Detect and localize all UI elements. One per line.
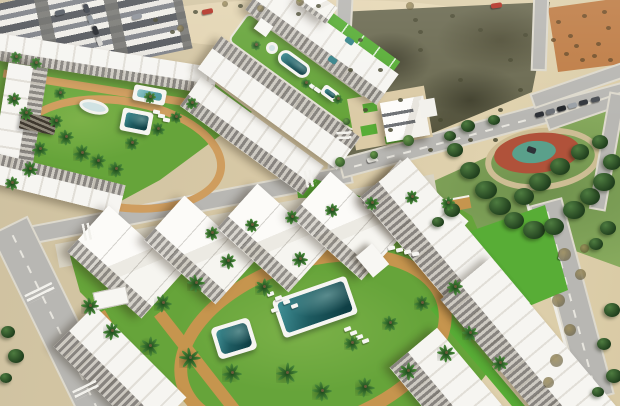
- shrub: [316, 4, 321, 8]
- pine-tree: [571, 144, 589, 159]
- pine-tree: [606, 369, 620, 383]
- shrub: [428, 148, 433, 152]
- dry-tree: [257, 5, 264, 12]
- shrub: [478, 28, 483, 32]
- palm-tree: [144, 90, 156, 102]
- crosswalk: [72, 380, 100, 400]
- shrub: [450, 14, 455, 18]
- palm-tree: [58, 128, 74, 144]
- parked-car: [55, 8, 66, 15]
- shrub: [498, 108, 503, 112]
- palm-tree: [22, 160, 38, 176]
- parked-car: [590, 95, 600, 102]
- dry-tree: [575, 269, 586, 280]
- palm-tree: [245, 217, 259, 231]
- sun-lounger: [343, 326, 351, 332]
- crosswalk: [336, 131, 352, 142]
- sun-lounger: [282, 299, 290, 305]
- sun-lounger: [403, 249, 411, 254]
- palm-tree: [49, 113, 63, 127]
- palm-tree: [19, 105, 33, 119]
- dirt-shrub: [574, 44, 579, 48]
- pine-tree: [461, 120, 475, 132]
- aerial-development-render: [0, 0, 620, 406]
- dry-tree: [177, 25, 184, 32]
- palm-tree: [462, 324, 478, 340]
- palm-tree: [125, 135, 139, 149]
- palm-tree: [10, 50, 22, 62]
- palm-tree: [30, 56, 42, 68]
- shrub: [378, 68, 383, 72]
- sun-lounger: [387, 245, 395, 250]
- pine-tree: [432, 217, 444, 227]
- palm-tree: [292, 250, 308, 266]
- dirt-shrub: [602, 10, 607, 14]
- palm-tree: [222, 362, 242, 382]
- parked-car: [86, 14, 94, 24]
- parked-car: [556, 104, 566, 111]
- crosswalk: [24, 282, 55, 304]
- palm-tree: [382, 314, 398, 330]
- pine-tree: [563, 201, 585, 220]
- palm-tree: [103, 321, 121, 339]
- pine-tree: [475, 181, 497, 200]
- dirt-shrub: [564, 52, 569, 56]
- shrub: [468, 138, 473, 142]
- parked-car: [534, 110, 544, 117]
- pine-tree: [600, 221, 616, 235]
- pine-tree: [8, 349, 24, 363]
- dirt-shrub: [592, 54, 597, 58]
- tree: [335, 157, 345, 167]
- shrub: [438, 118, 443, 122]
- sun-lounger: [411, 251, 419, 256]
- pine-tree: [589, 238, 603, 250]
- pine-tree: [597, 338, 611, 350]
- palm-tree: [325, 202, 339, 216]
- palm-tree: [255, 277, 273, 295]
- pine-tree: [604, 303, 620, 317]
- palm-tree: [405, 189, 419, 203]
- shrub: [238, 4, 243, 8]
- parked-car: [132, 12, 143, 19]
- shrub: [418, 48, 423, 52]
- shrub: [518, 88, 523, 92]
- palm-tree: [187, 273, 205, 291]
- dirt-shrub: [606, 26, 611, 30]
- pine-tree: [460, 162, 480, 179]
- dry-tree: [550, 354, 563, 367]
- dirt-shrub: [556, 20, 561, 24]
- dry-tree: [552, 294, 565, 307]
- dirt-shrub: [551, 38, 556, 42]
- palm-tree: [301, 77, 311, 87]
- shrub: [296, 12, 301, 16]
- shrub: [348, 68, 353, 72]
- pine-tree: [580, 188, 600, 205]
- pine-tree: [544, 218, 564, 235]
- shrub: [523, 33, 528, 37]
- pine-tree: [529, 173, 551, 192]
- dry-tree: [296, 0, 304, 6]
- palm-tree: [73, 143, 91, 161]
- shrub: [153, 18, 158, 22]
- palm-tree: [32, 140, 48, 156]
- palm-tree: [205, 225, 219, 239]
- palm-tree: [7, 91, 21, 105]
- palm-tree: [179, 346, 201, 368]
- parked-car: [201, 7, 213, 14]
- tree: [403, 135, 414, 146]
- pine-tree: [1, 326, 15, 338]
- palm-tree: [154, 293, 172, 311]
- dirt-shrub: [596, 42, 601, 46]
- scene-objects-layer: [0, 0, 620, 406]
- dry-tree: [558, 248, 571, 261]
- pine-tree: [523, 221, 545, 240]
- sun-lounger: [313, 86, 321, 93]
- shrub: [388, 128, 393, 132]
- dry-tree: [222, 1, 228, 7]
- palm-tree: [276, 361, 298, 383]
- parked-car: [567, 101, 577, 108]
- dirt-shrub: [608, 58, 613, 62]
- dirt-shrub: [568, 34, 573, 38]
- dirt-shrub: [580, 58, 585, 62]
- palm-tree: [54, 86, 66, 98]
- tree: [370, 151, 378, 159]
- palm-tree: [399, 361, 417, 379]
- palm-tree: [312, 380, 332, 400]
- pine-tree: [514, 188, 534, 205]
- palm-tree: [251, 39, 261, 49]
- shrub: [193, 10, 198, 14]
- palm-tree: [355, 376, 375, 396]
- palm-tree: [5, 175, 19, 189]
- shrub: [413, 18, 418, 22]
- palm-tree: [437, 343, 455, 361]
- dry-tree: [580, 244, 589, 253]
- pine-tree: [603, 154, 620, 169]
- palm-tree: [333, 93, 343, 103]
- dry-tree: [564, 324, 576, 336]
- pine-tree: [550, 158, 570, 175]
- pine-tree: [0, 373, 12, 383]
- dry-tree: [543, 377, 554, 388]
- parked-car: [578, 98, 588, 105]
- sun-lounger: [361, 338, 369, 344]
- sun-lounger: [395, 247, 403, 252]
- palm-tree: [81, 296, 99, 314]
- pine-tree: [488, 115, 500, 125]
- parked-car: [82, 3, 90, 13]
- palm-tree: [186, 96, 198, 108]
- parked-car: [490, 2, 502, 8]
- shrub: [358, 38, 363, 42]
- palm-tree: [447, 278, 463, 294]
- pine-tree: [504, 212, 524, 229]
- sun-lounger: [290, 303, 298, 309]
- shrub: [363, 108, 368, 112]
- shrub: [458, 78, 463, 82]
- palm-tree: [344, 334, 360, 350]
- palm-tree: [414, 294, 430, 310]
- sun-lounger: [270, 307, 278, 313]
- palm-tree: [170, 110, 182, 122]
- shrub: [170, 30, 175, 34]
- palm-tree: [151, 121, 165, 135]
- tree: [343, 118, 350, 125]
- palm-tree: [492, 354, 508, 370]
- palm-tree: [90, 152, 106, 168]
- parked-car: [91, 25, 99, 35]
- pine-tree: [592, 387, 604, 397]
- palm-tree: [365, 195, 379, 209]
- dry-tree: [406, 2, 414, 10]
- palm-tree: [140, 335, 160, 355]
- palm-tree: [441, 195, 455, 209]
- pine-tree: [592, 135, 608, 149]
- shrub: [398, 98, 403, 102]
- parked-car: [95, 36, 103, 46]
- shrub: [493, 138, 498, 142]
- dirt-shrub: [582, 14, 587, 18]
- shrub: [418, 30, 423, 34]
- crosswalk: [303, 169, 316, 188]
- shrub: [508, 58, 513, 62]
- pine-tree: [447, 143, 463, 157]
- pine-tree: [444, 131, 456, 141]
- crosswalk: [81, 222, 94, 241]
- sun-lounger: [274, 295, 282, 301]
- palm-tree: [108, 160, 124, 176]
- pine-tree: [593, 173, 615, 192]
- palm-tree: [220, 252, 236, 268]
- parked-car: [545, 107, 555, 114]
- palm-tree: [285, 209, 299, 223]
